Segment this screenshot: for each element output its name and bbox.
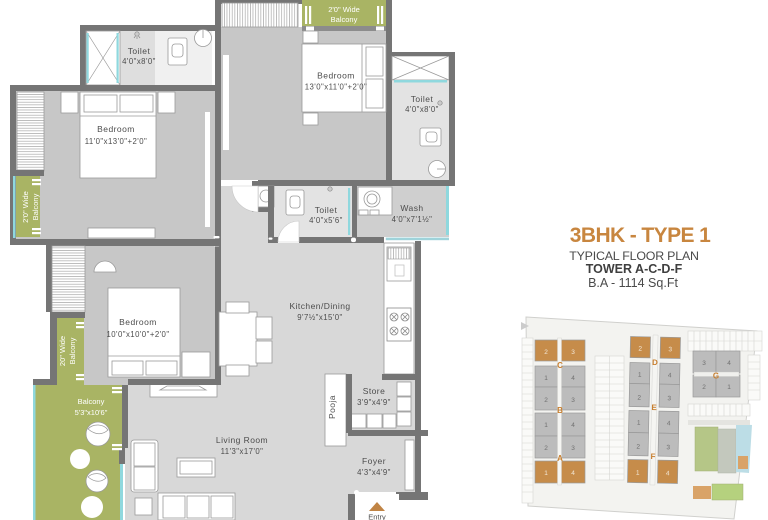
svg-text:Living Room: Living Room [216,435,268,445]
svg-text:2: 2 [544,349,548,356]
svg-text:4'3"x4'9": 4'3"x4'9" [357,468,391,477]
svg-text:Bedroom: Bedroom [119,317,157,327]
svg-text:1: 1 [544,422,548,429]
svg-text:1: 1 [636,470,640,477]
svg-text:TYPICAL FLOOR PLAN: TYPICAL FLOOR PLAN [569,249,699,263]
svg-text:2: 2 [544,445,548,452]
svg-text:D: D [652,358,658,367]
svg-text:10'0"x10'0"+2'0": 10'0"x10'0"+2'0" [106,330,169,339]
svg-text:C: C [557,361,563,370]
svg-text:2: 2 [638,346,642,353]
svg-text:Kitchen/Dining: Kitchen/Dining [289,301,350,311]
svg-text:Balcony: Balcony [331,15,358,24]
svg-text:Bedroom: Bedroom [97,124,135,134]
svg-text:3: 3 [668,346,672,353]
svg-text:1: 1 [638,372,642,379]
svg-text:Wash: Wash [400,203,423,213]
svg-text:2: 2 [702,384,706,391]
svg-text:4: 4 [727,360,731,367]
svg-text:2: 2 [544,397,548,404]
svg-text:2'0" Wide: 2'0" Wide [21,191,30,223]
svg-text:11'3"x17'0": 11'3"x17'0" [221,447,264,456]
svg-text:3: 3 [666,444,670,451]
svg-text:2'0" Wide: 2'0" Wide [328,5,360,14]
svg-text:4'0"x8'0": 4'0"x8'0" [122,57,156,66]
svg-text:Toilet: Toilet [315,205,338,215]
svg-text:Toilet: Toilet [411,94,434,104]
svg-text:B: B [557,406,563,415]
svg-text:11'0"x13'0"+2'0": 11'0"x13'0"+2'0" [85,137,148,146]
svg-text:4'0"x5'6": 4'0"x5'6" [309,216,343,225]
svg-text:F: F [650,452,655,461]
svg-text:Pooja: Pooja [327,395,337,419]
svg-text:Balcony: Balcony [31,193,40,220]
svg-text:Toilet: Toilet [128,46,151,56]
svg-text:Balcony: Balcony [68,337,77,364]
svg-text:4'0"x7'1½": 4'0"x7'1½" [392,215,433,224]
svg-text:3: 3 [571,445,575,452]
svg-text:20" Wide: 20" Wide [58,336,67,366]
svg-text:5'3"x10'6": 5'3"x10'6" [75,408,108,417]
svg-text:4: 4 [571,375,575,382]
svg-text:A: A [557,454,563,463]
svg-text:3: 3 [667,395,671,402]
svg-text:4: 4 [667,420,671,427]
svg-text:4'0"x8'0": 4'0"x8'0" [405,105,439,114]
svg-text:9'7½"x15'0": 9'7½"x15'0" [297,313,343,322]
svg-text:3: 3 [571,349,575,356]
svg-text:13'0"x11'0"+2'0": 13'0"x11'0"+2'0" [305,83,368,92]
svg-text:B.A - 1114 Sq.Ft: B.A - 1114 Sq.Ft [588,276,678,290]
svg-text:Bedroom: Bedroom [317,71,355,81]
svg-text:Store: Store [363,386,386,396]
svg-text:3: 3 [571,397,575,404]
svg-text:TOWER A-C-D-F: TOWER A-C-D-F [586,262,683,276]
svg-text:1: 1 [544,375,548,382]
svg-text:4: 4 [571,470,575,477]
svg-text:1: 1 [727,384,731,391]
svg-text:E: E [651,403,657,412]
svg-text:3'9"x4'9": 3'9"x4'9" [357,398,391,407]
svg-text:2: 2 [636,444,640,451]
svg-text:4: 4 [666,470,670,477]
svg-text:1: 1 [637,420,641,427]
svg-text:Balcony: Balcony [78,397,105,406]
svg-text:3: 3 [702,360,706,367]
svg-text:G: G [713,372,719,381]
svg-text:4: 4 [668,372,672,379]
svg-text:1: 1 [544,470,548,477]
svg-text:Entry: Entry [368,513,386,520]
svg-text:2: 2 [637,395,641,402]
svg-text:4: 4 [571,422,575,429]
svg-text:Foyer: Foyer [362,456,386,466]
svg-text:3BHK - TYPE 1: 3BHK - TYPE 1 [570,224,711,247]
